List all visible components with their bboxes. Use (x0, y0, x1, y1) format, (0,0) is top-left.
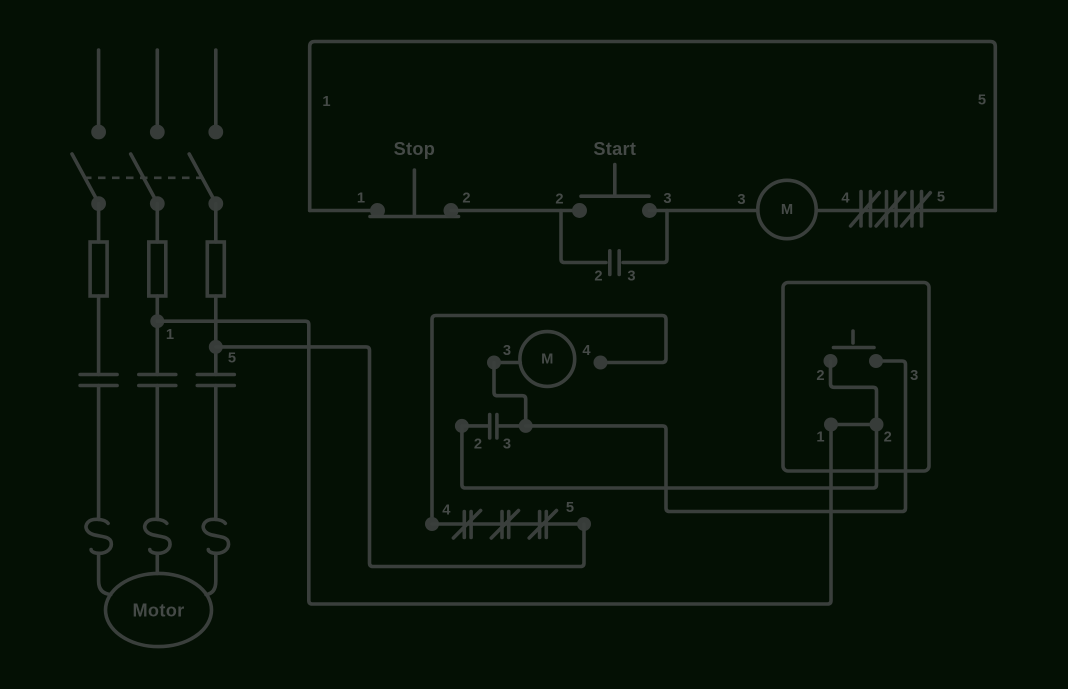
svg-text:3: 3 (627, 269, 635, 285)
svg-text:4: 4 (442, 503, 451, 519)
svg-text:Start: Start (593, 139, 636, 159)
svg-text:5: 5 (978, 93, 986, 109)
svg-text:M: M (781, 202, 793, 218)
svg-text:1: 1 (816, 429, 824, 445)
svg-text:3: 3 (503, 343, 511, 359)
svg-text:5: 5 (566, 500, 574, 516)
svg-text:1: 1 (166, 327, 174, 343)
svg-text:Stop: Stop (394, 139, 436, 159)
svg-text:3: 3 (737, 192, 745, 208)
svg-text:2: 2 (816, 368, 824, 384)
svg-text:3: 3 (503, 437, 511, 453)
svg-text:2: 2 (594, 269, 602, 285)
svg-text:2: 2 (462, 191, 470, 207)
svg-text:3: 3 (663, 191, 671, 207)
svg-text:2: 2 (884, 429, 892, 445)
svg-text:5: 5 (228, 351, 236, 367)
svg-text:M: M (541, 352, 553, 368)
svg-text:3: 3 (910, 368, 918, 384)
svg-text:1: 1 (322, 94, 330, 110)
svg-text:1: 1 (357, 191, 365, 207)
svg-text:4: 4 (582, 343, 591, 359)
svg-text:2: 2 (474, 437, 482, 453)
svg-text:5: 5 (937, 190, 945, 206)
svg-text:4: 4 (841, 191, 850, 207)
svg-text:2: 2 (555, 192, 563, 208)
svg-text:Motor: Motor (132, 601, 184, 621)
